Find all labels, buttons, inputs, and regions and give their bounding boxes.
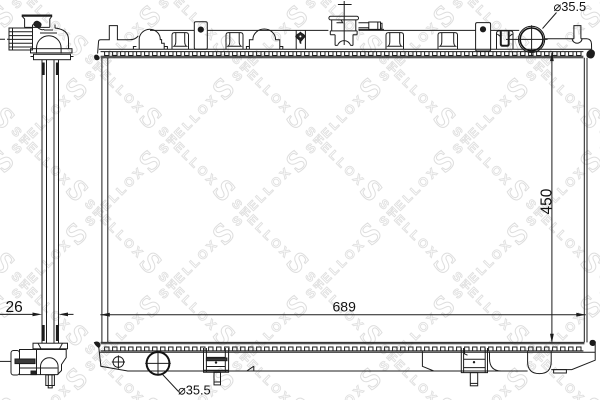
svg-text:⌀35.5: ⌀35.5 <box>554 0 587 14</box>
svg-text:689: 689 <box>333 299 357 315</box>
svg-text:26: 26 <box>6 299 23 316</box>
svg-text:450: 450 <box>538 188 555 214</box>
svg-text:⌀35.5: ⌀35.5 <box>178 383 211 398</box>
